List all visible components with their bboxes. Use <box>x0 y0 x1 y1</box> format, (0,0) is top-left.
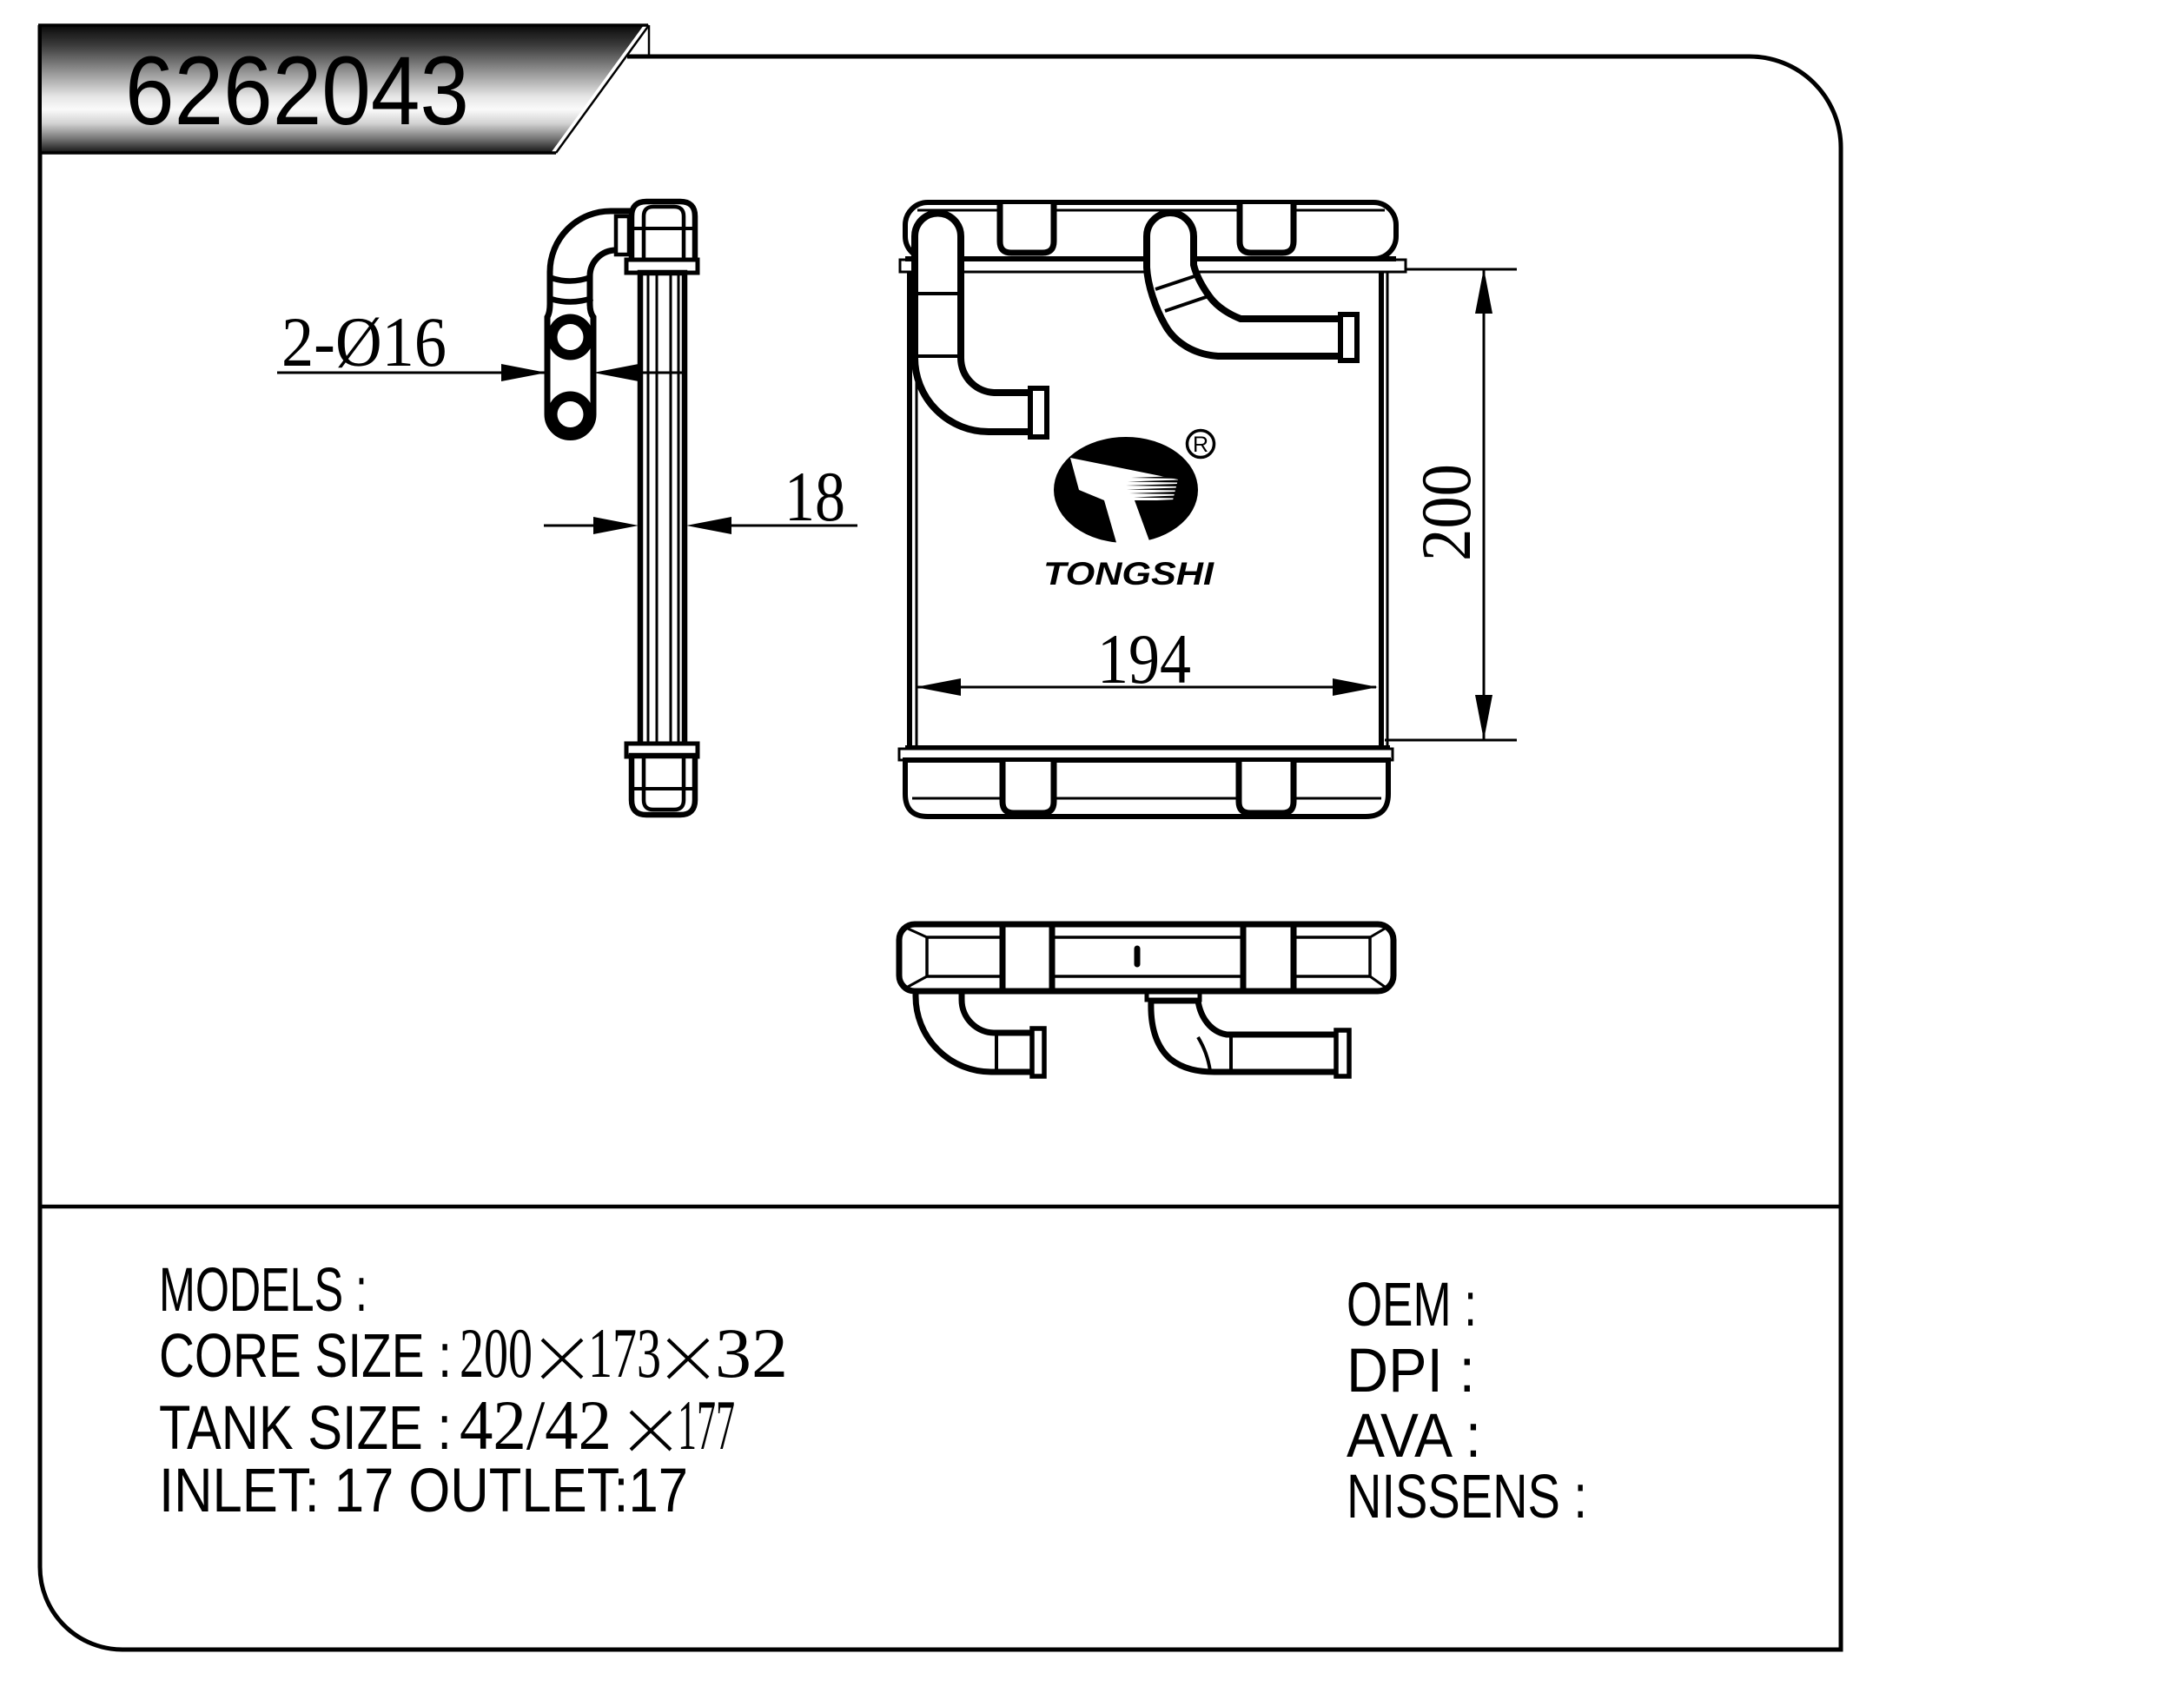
svg-text:INLET: 17 OUTLET:17: INLET: 17 OUTLET:17 <box>159 1457 688 1525</box>
svg-text:2-Ø16: 2-Ø16 <box>281 302 447 381</box>
svg-text:200: 200 <box>460 1313 533 1392</box>
svg-text:MODELS :: MODELS : <box>159 1256 367 1325</box>
svg-text:18: 18 <box>784 457 845 536</box>
svg-text:200: 200 <box>1406 464 1486 561</box>
svg-text:OEM :: OEM : <box>1347 1271 1477 1339</box>
svg-text:6262043: 6262043 <box>125 36 469 145</box>
svg-text:NISSENS :: NISSENS : <box>1347 1463 1587 1531</box>
svg-text:DPI :: DPI : <box>1347 1337 1475 1405</box>
svg-text:32: 32 <box>715 1313 788 1392</box>
svg-text:42/42: 42/42 <box>460 1385 612 1465</box>
svg-text:AVA :: AVA : <box>1347 1402 1481 1471</box>
svg-text:173: 173 <box>588 1313 661 1392</box>
svg-text:R: R <box>1193 433 1208 457</box>
svg-text:CORE SIZE :: CORE SIZE : <box>159 1322 452 1391</box>
svg-text:TONGSHI: TONGSHI <box>1043 556 1214 592</box>
svg-text:177: 177 <box>678 1385 735 1465</box>
svg-text:TANK SIZE :: TANK SIZE : <box>159 1394 452 1463</box>
